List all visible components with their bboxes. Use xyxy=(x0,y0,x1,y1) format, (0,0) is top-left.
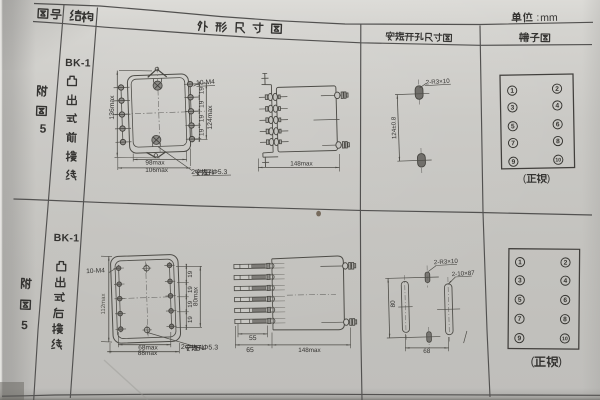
svg-text:7: 7 xyxy=(511,140,515,147)
svg-text::: : xyxy=(536,13,539,24)
svg-text:2: 2 xyxy=(564,260,568,267)
svg-text:2: 2 xyxy=(181,344,185,351)
svg-text:4: 4 xyxy=(563,278,567,285)
svg-text:148max: 148max xyxy=(290,161,313,168)
svg-text:19: 19 xyxy=(199,128,206,136)
svg-text:124max: 124max xyxy=(207,105,214,130)
svg-text:19: 19 xyxy=(199,115,206,123)
svg-text:8: 8 xyxy=(563,316,567,323)
svg-text:80max: 80max xyxy=(193,286,200,306)
svg-text:9: 9 xyxy=(517,335,521,342)
svg-text:(: ( xyxy=(531,356,535,368)
svg-text:19: 19 xyxy=(199,87,206,95)
svg-text:1: 1 xyxy=(510,88,514,95)
svg-text:5: 5 xyxy=(518,297,522,304)
svg-text:6: 6 xyxy=(563,297,567,304)
svg-text:2-R3×10: 2-R3×10 xyxy=(434,258,459,266)
svg-text:BK-1: BK-1 xyxy=(65,57,91,69)
svg-text:98max: 98max xyxy=(145,159,165,166)
svg-text:Φ5.3: Φ5.3 xyxy=(203,345,218,352)
svg-text:19: 19 xyxy=(187,316,194,323)
svg-text:148max: 148max xyxy=(298,347,321,354)
svg-text:88max: 88max xyxy=(138,350,158,357)
svg-text:5: 5 xyxy=(39,122,46,136)
svg-text:5: 5 xyxy=(21,318,28,332)
svg-text:80: 80 xyxy=(390,300,397,308)
svg-text:mm: mm xyxy=(540,12,558,24)
svg-text:112max: 112max xyxy=(100,294,107,315)
svg-text:68: 68 xyxy=(423,348,431,355)
svg-text:5: 5 xyxy=(511,123,515,130)
svg-text:3: 3 xyxy=(511,105,515,112)
svg-text:4: 4 xyxy=(555,103,559,110)
svg-text:): ) xyxy=(558,356,562,368)
svg-text:6: 6 xyxy=(556,121,560,128)
svg-text:2: 2 xyxy=(555,86,559,93)
svg-text:7: 7 xyxy=(518,316,522,323)
svg-text:19: 19 xyxy=(187,270,194,277)
svg-text:55: 55 xyxy=(249,335,257,342)
svg-text:10: 10 xyxy=(555,157,561,163)
svg-text:1: 1 xyxy=(518,259,522,266)
svg-text:8: 8 xyxy=(556,138,560,145)
svg-text:3: 3 xyxy=(518,277,522,284)
svg-text:124±0.8: 124±0.8 xyxy=(390,116,398,139)
svg-text:106max: 106max xyxy=(145,167,169,174)
svg-text:2-10×87: 2-10×87 xyxy=(452,270,476,278)
svg-text:136max: 136max xyxy=(109,95,116,120)
svg-text:65: 65 xyxy=(246,347,254,354)
svg-text:10: 10 xyxy=(562,336,568,342)
svg-text:19: 19 xyxy=(199,100,206,108)
svg-text:9: 9 xyxy=(512,159,516,166)
svg-text:2: 2 xyxy=(191,169,195,176)
svg-text:BK-1: BK-1 xyxy=(54,232,80,244)
svg-text:10-M4: 10-M4 xyxy=(86,267,105,275)
svg-text:): ) xyxy=(547,173,550,184)
